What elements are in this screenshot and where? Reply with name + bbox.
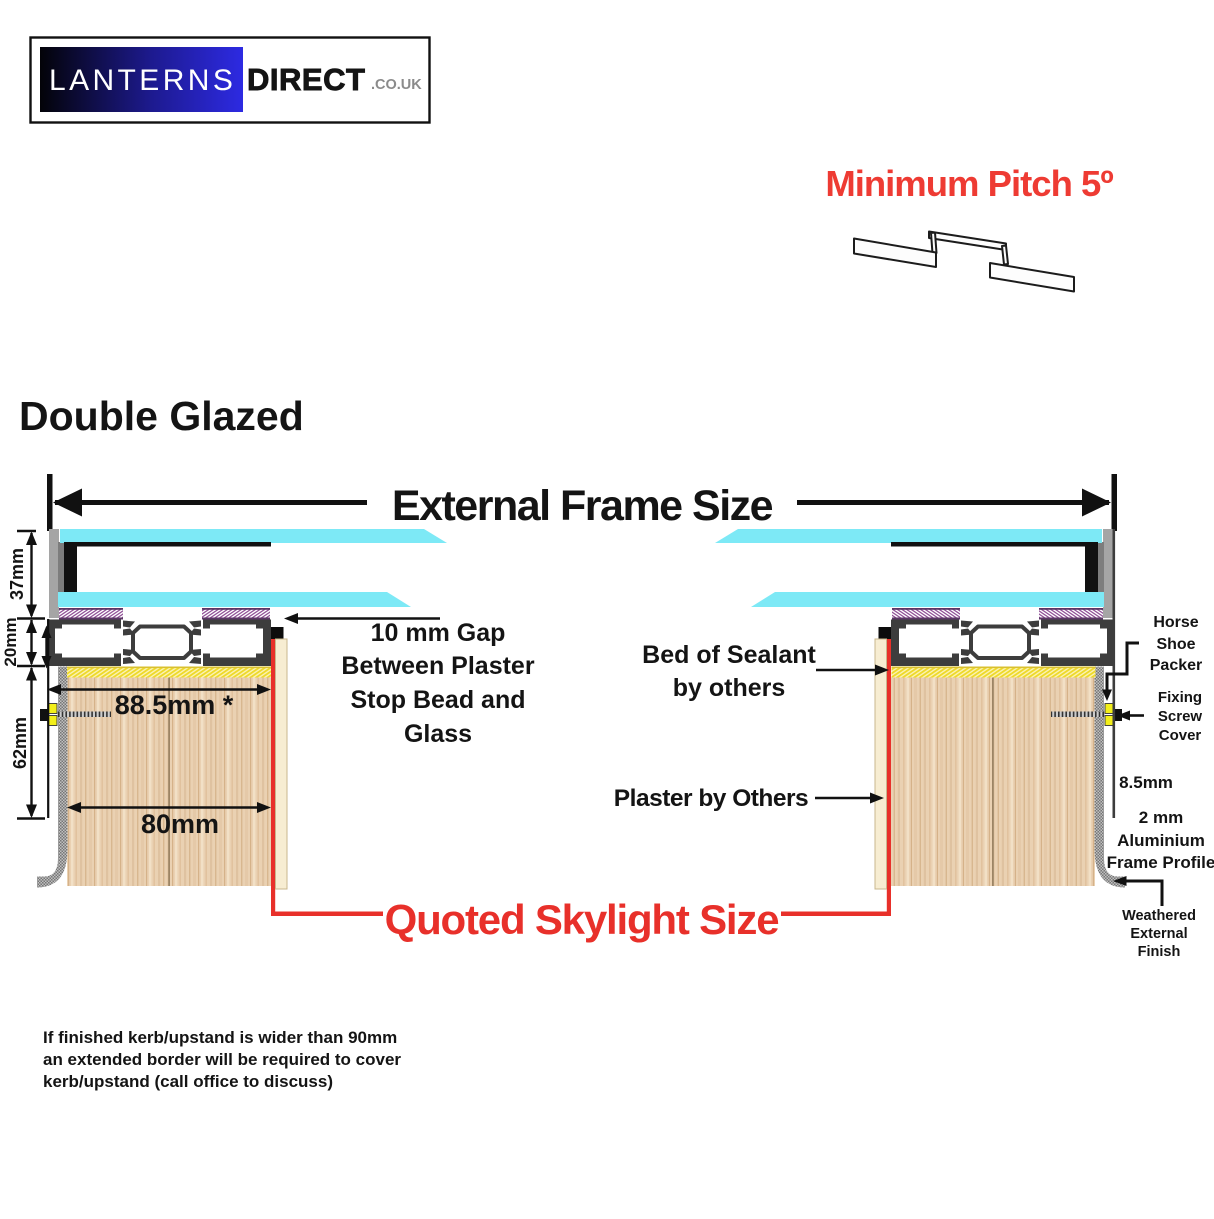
svg-text:Packer: Packer — [1150, 657, 1203, 674]
svg-text:8.5mm: 8.5mm — [1119, 773, 1173, 792]
svg-text:LANTERNS: LANTERNS — [49, 64, 236, 97]
svg-text:.CO.UK: .CO.UK — [371, 77, 422, 93]
svg-text:Weathered: Weathered — [1122, 908, 1196, 924]
svg-text:by others: by others — [673, 674, 786, 702]
svg-text:80mm: 80mm — [141, 809, 219, 839]
svg-text:an extended border will be req: an extended border will be required to c… — [43, 1050, 401, 1069]
svg-text:Between Plaster: Between Plaster — [341, 652, 534, 680]
svg-text:Horse: Horse — [1153, 614, 1198, 631]
svg-text:Minimum Pitch 5º: Minimum Pitch 5º — [825, 163, 1113, 204]
svg-text:Quoted Skylight Size: Quoted Skylight Size — [385, 896, 779, 943]
svg-text:External: External — [1130, 926, 1187, 942]
svg-text:Aluminium: Aluminium — [1117, 831, 1205, 850]
svg-text:88.5mm *: 88.5mm * — [115, 690, 234, 720]
svg-text:External Frame Size: External Frame Size — [392, 482, 773, 530]
svg-text:Double Glazed: Double Glazed — [19, 393, 304, 439]
svg-text:Stop Bead and: Stop Bead and — [350, 686, 525, 714]
svg-text:Screw: Screw — [1158, 708, 1203, 725]
svg-text:Glass: Glass — [404, 720, 472, 748]
svg-text:Fixing: Fixing — [1158, 689, 1202, 706]
svg-text:2 mm: 2 mm — [1139, 808, 1183, 827]
svg-text:DIRECT: DIRECT — [247, 62, 365, 97]
svg-text:Cover: Cover — [1159, 727, 1202, 744]
svg-text:Frame Profile: Frame Profile — [1107, 853, 1214, 872]
svg-text:62mm: 62mm — [10, 717, 30, 769]
svg-text:Plaster by Others: Plaster by Others — [614, 785, 808, 812]
svg-text:Shoe: Shoe — [1156, 636, 1195, 653]
svg-text:Bed of Sealant: Bed of Sealant — [642, 641, 816, 669]
svg-text:If finished kerb/upstand is wi: If finished kerb/upstand is wider than 9… — [43, 1028, 397, 1047]
svg-text:20mm: 20mm — [1, 617, 20, 666]
svg-text:37mm: 37mm — [7, 548, 27, 600]
svg-text:Finish: Finish — [1138, 944, 1181, 960]
svg-text:10 mm Gap: 10 mm Gap — [371, 619, 506, 647]
svg-text:kerb/upstand (call office to d: kerb/upstand (call office to discuss) — [43, 1072, 333, 1091]
